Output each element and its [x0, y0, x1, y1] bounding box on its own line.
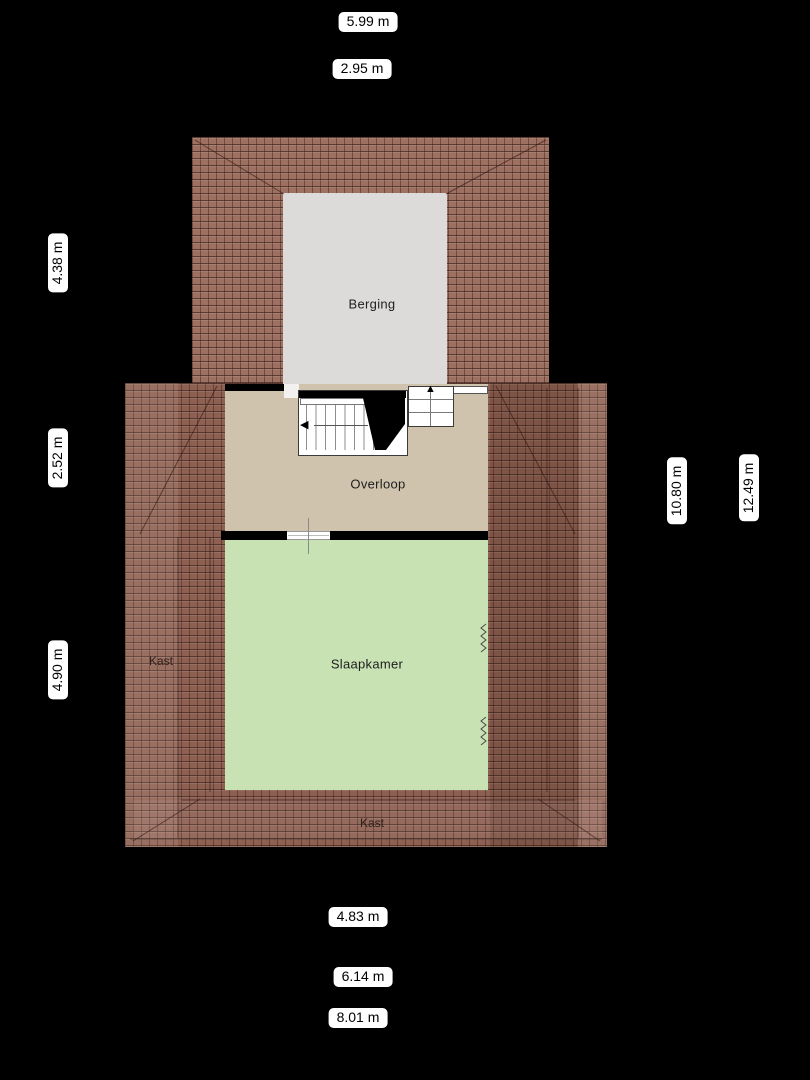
dimension-label-left-0: 4.38 m [48, 234, 68, 293]
dimension-label-top-0: 5.99 m [339, 12, 398, 32]
room-berging [283, 193, 447, 384]
main-staircase-landing [300, 398, 393, 405]
stairwell-parapet [453, 386, 488, 394]
dimension-label-right-0: 10.80 m [667, 458, 687, 525]
dimension-label-bottom-0: 4.83 m [329, 907, 388, 927]
room-label-kast-left: Kast [149, 654, 173, 668]
roof-band-right-light [578, 383, 607, 847]
main-staircase-void [299, 391, 406, 398]
berging-staircase-step1 [409, 399, 453, 400]
dimension-label-top-1: 2.95 m [333, 59, 392, 79]
roof-band-right-dark [490, 383, 578, 847]
floorplan-canvas: ◀ ▲ Ber [0, 0, 810, 1080]
room-label-overloop: Overloop [350, 477, 405, 492]
wall-slaapkamer-top [221, 531, 488, 540]
room-label-kast-bottom: Kast [360, 816, 384, 830]
main-staircase-steps [306, 405, 382, 450]
dimension-label-left-1: 2.52 m [48, 429, 68, 488]
dimension-label-right-1: 12.49 m [739, 455, 759, 522]
dimension-label-bottom-1: 6.14 m [334, 967, 393, 987]
slaapkamer-door-swing-line [308, 518, 309, 554]
berging-staircase-centerline [430, 392, 431, 426]
stairwell-floor-patch [284, 384, 299, 398]
berging-staircase-step2 [409, 412, 453, 413]
room-label-berging: Berging [349, 297, 396, 312]
stairs-down-arrow-icon: ◀ [300, 420, 308, 431]
roof-band-left [125, 383, 178, 847]
stairs-up-arrow-icon: ▲ [425, 384, 436, 395]
dimension-label-left-2: 4.90 m [48, 641, 68, 700]
room-label-slaapkamer: Slaapkamer [331, 657, 403, 672]
wall-overloop-top [225, 384, 285, 391]
dimension-label-bottom-2: 8.01 m [329, 1008, 388, 1028]
main-staircase-walkline [314, 425, 368, 426]
